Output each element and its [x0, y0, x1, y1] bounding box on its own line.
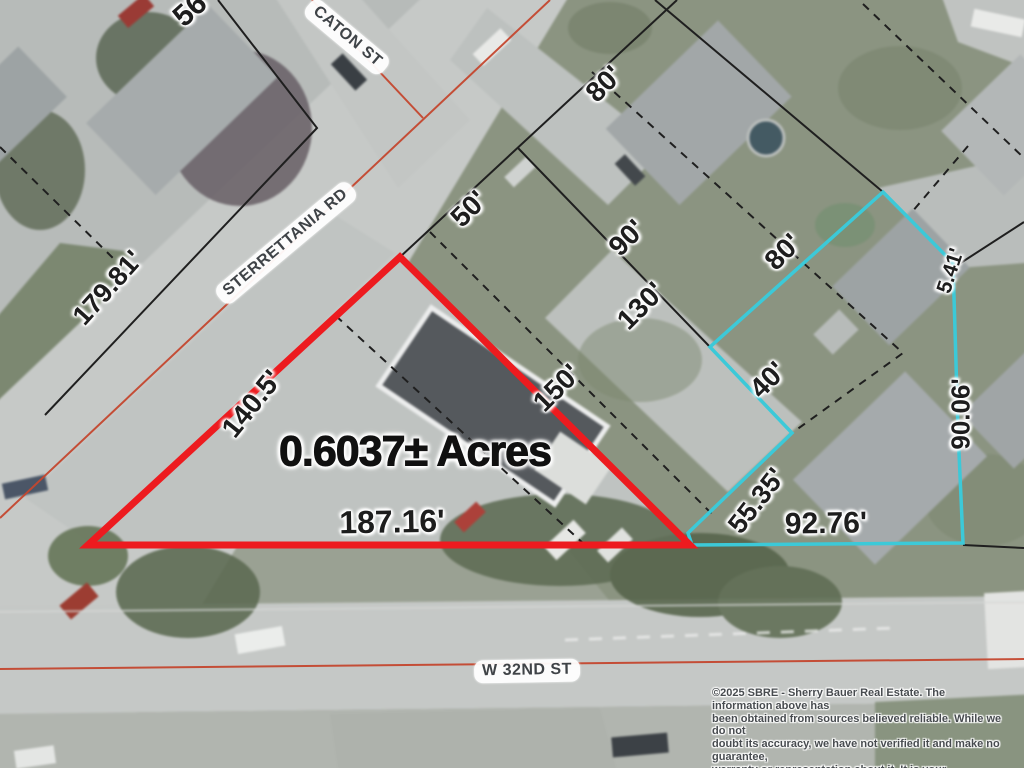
copyright-line: doubt its accuracy, we have not verified… [712, 738, 1002, 764]
acreage-label: 0.6037± Acres [279, 428, 551, 477]
dimension-label-92-76: 92.76' [785, 506, 868, 541]
copyright-line: ©2025 SBRE - Sherry Bauer Real Estate. T… [712, 687, 1002, 713]
copyright-disclaimer: ©2025 SBRE - Sherry Bauer Real Estate. T… [712, 687, 1002, 768]
aerial-parcel-map: 56' CATON ST STERRETTANIA RD W 32ND ST 1… [0, 0, 1024, 768]
survey-line-layer [0, 0, 1024, 768]
copyright-line: been obtained from sources believed reli… [712, 713, 1002, 739]
street-label-w32nd: W 32ND ST [474, 659, 580, 684]
dimension-label-90-06: 90.06' [946, 378, 977, 449]
red-parcel-outline [88, 257, 690, 545]
copyright-line: warranty or representation about it. It … [712, 764, 1002, 768]
dimension-label-187-16: 187.16' [339, 503, 445, 542]
cyan-parcel-outline [688, 192, 963, 545]
road-centerlines [0, 0, 1024, 669]
